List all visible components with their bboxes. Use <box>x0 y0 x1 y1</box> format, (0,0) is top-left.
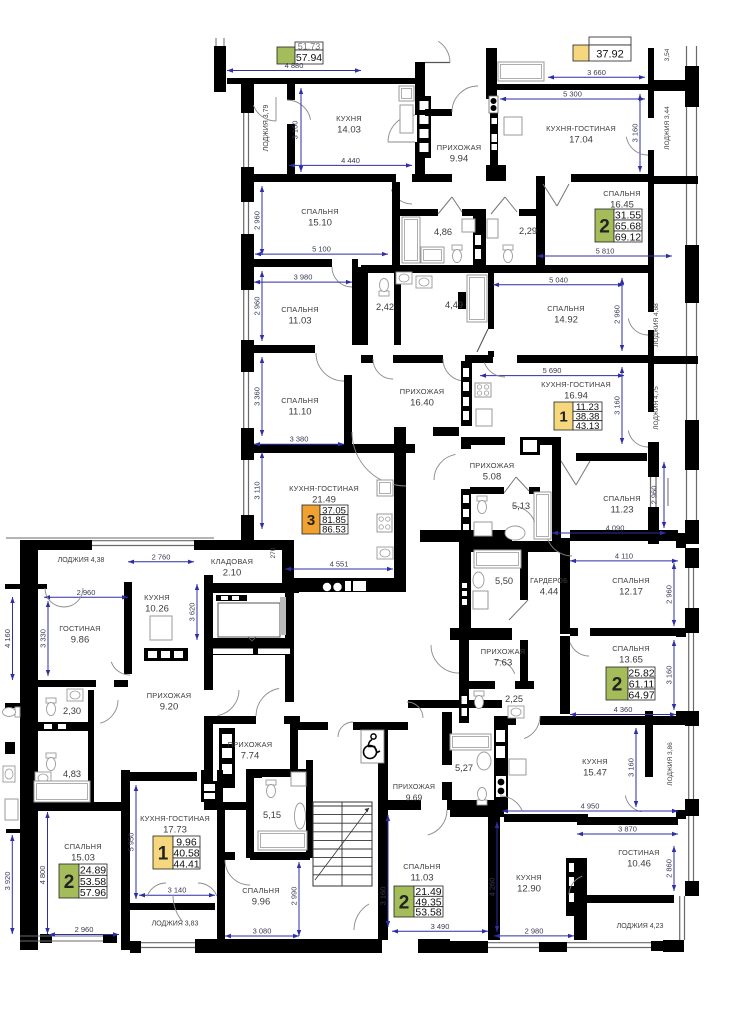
svg-text:11.03: 11.03 <box>410 873 433 884</box>
svg-text:СПАЛЬНЯ: СПАЛЬНЯ <box>603 494 641 503</box>
svg-text:3 160: 3 160 <box>665 666 674 685</box>
svg-text:9.94: 9.94 <box>450 154 469 165</box>
svg-text:ЛОДЖИЯ 3,83: ЛОДЖИЯ 3,83 <box>152 921 199 928</box>
svg-text:3 360: 3 360 <box>253 387 262 406</box>
svg-text:5 690: 5 690 <box>543 366 562 375</box>
svg-text:17.73: 17.73 <box>163 825 187 836</box>
svg-text:5 100: 5 100 <box>312 245 331 254</box>
svg-text:4,49: 4,49 <box>445 300 463 310</box>
svg-text:5.08: 5.08 <box>483 472 502 483</box>
svg-text:2 960: 2 960 <box>253 297 262 316</box>
svg-text:СПАЛЬНЯ: СПАЛЬНЯ <box>301 207 339 216</box>
svg-text:3 160: 3 160 <box>379 887 388 906</box>
svg-text:2 960: 2 960 <box>650 486 659 505</box>
svg-text:5 040: 5 040 <box>549 275 568 284</box>
svg-text:СПАЛЬНЯ: СПАЛЬНЯ <box>281 305 319 314</box>
svg-text:64.97: 64.97 <box>628 689 654 701</box>
svg-text:СПАЛЬНЯ: СПАЛЬНЯ <box>603 189 641 198</box>
svg-text:3 870: 3 870 <box>618 825 637 834</box>
svg-text:9.96: 9.96 <box>252 897 271 908</box>
svg-text:КЛАДОВАЯ: КЛАДОВАЯ <box>211 557 253 566</box>
svg-text:5,27: 5,27 <box>455 763 473 773</box>
svg-text:2: 2 <box>612 674 623 695</box>
svg-text:2: 2 <box>64 872 75 893</box>
svg-text:5 810: 5 810 <box>596 247 615 256</box>
svg-text:11.10: 11.10 <box>288 407 311 418</box>
svg-text:53.58: 53.58 <box>80 876 106 888</box>
svg-text:ГОСТИНАЯ: ГОСТИНАЯ <box>618 848 659 857</box>
svg-text:СПАЛЬНЯ: СПАЛЬНЯ <box>612 644 650 653</box>
svg-text:2,42: 2,42 <box>376 302 394 312</box>
svg-text:ЛОДЖИЯ 4,38: ЛОДЖИЯ 4,38 <box>58 557 105 564</box>
svg-text:69.12: 69.12 <box>615 231 641 243</box>
svg-text:2 960: 2 960 <box>75 925 94 934</box>
svg-text:3 330: 3 330 <box>39 629 48 648</box>
svg-text:СПАЛЬНЯ: СПАЛЬНЯ <box>403 862 441 871</box>
svg-text:37.92: 37.92 <box>596 49 624 61</box>
svg-text:2,25: 2,25 <box>505 694 523 704</box>
svg-text:2,29: 2,29 <box>519 226 537 236</box>
svg-text:2 960: 2 960 <box>253 211 262 230</box>
svg-text:КУХНЯ: КУХНЯ <box>516 873 542 882</box>
svg-text:44.41: 44.41 <box>173 858 199 870</box>
svg-text:7.74: 7.74 <box>241 751 260 762</box>
svg-text:3 920: 3 920 <box>3 872 12 891</box>
svg-text:3 160: 3 160 <box>627 758 636 777</box>
svg-text:3 160: 3 160 <box>291 121 300 140</box>
svg-text:4 160: 4 160 <box>3 629 12 648</box>
svg-text:3 080: 3 080 <box>253 927 272 936</box>
svg-text:ПРИХОЖАЯ: ПРИХОЖАЯ <box>481 647 526 656</box>
svg-text:5 950: 5 950 <box>127 833 136 852</box>
svg-text:КУХНЯ: КУХНЯ <box>144 593 170 602</box>
svg-text:16.94: 16.94 <box>564 391 588 402</box>
svg-text:24.89: 24.89 <box>80 864 106 876</box>
svg-text:21.49: 21.49 <box>312 495 336 506</box>
svg-text:270: 270 <box>270 547 277 558</box>
svg-text:4 551: 4 551 <box>330 560 349 569</box>
svg-text:15.10: 15.10 <box>308 218 332 229</box>
svg-text:3 160: 3 160 <box>613 396 622 415</box>
svg-text:КУХНЯ: КУХНЯ <box>336 114 362 123</box>
svg-text:ГОСТИНАЯ: ГОСТИНАЯ <box>59 624 100 633</box>
svg-text:2 960: 2 960 <box>77 588 96 597</box>
svg-text:9.20: 9.20 <box>160 702 179 713</box>
svg-text:ПРИХОЖАЯ: ПРИХОЖАЯ <box>147 691 192 700</box>
svg-text:ПРИХОЖАЯ: ПРИХОЖАЯ <box>470 461 515 470</box>
svg-text:11.03: 11.03 <box>288 316 311 327</box>
svg-text:16.40: 16.40 <box>410 398 434 409</box>
svg-text:2 990: 2 990 <box>290 887 299 906</box>
svg-text:12.90: 12.90 <box>517 884 541 895</box>
svg-text:4.44: 4.44 <box>540 587 559 598</box>
svg-text:14.03: 14.03 <box>337 125 361 136</box>
svg-text:КУХНЯ: КУХНЯ <box>582 757 608 766</box>
svg-text:КУХНЯ-ГОСТИНАЯ: КУХНЯ-ГОСТИНАЯ <box>541 380 611 389</box>
svg-text:1: 1 <box>559 408 567 425</box>
svg-text:ПРИХОЖАЯ: ПРИХОЖАЯ <box>437 143 482 152</box>
svg-text:5,15: 5,15 <box>263 810 281 820</box>
svg-text:12.17: 12.17 <box>619 587 643 598</box>
svg-text:5,50: 5,50 <box>495 576 513 586</box>
svg-text:53.58: 53.58 <box>415 907 441 919</box>
svg-text:1: 1 <box>158 843 169 864</box>
svg-text:3 620: 3 620 <box>188 603 197 622</box>
svg-text:2: 2 <box>599 216 610 237</box>
svg-text:10.46: 10.46 <box>627 859 651 870</box>
svg-text:4 110: 4 110 <box>615 551 633 560</box>
svg-text:11.23: 11.23 <box>610 505 633 516</box>
svg-text:ЛОДЖИЯ 4,68: ЛОДЖИЯ 4,68 <box>653 303 660 347</box>
svg-text:15.47: 15.47 <box>583 768 607 779</box>
svg-text:2 980: 2 980 <box>525 926 544 935</box>
svg-text:4,83: 4,83 <box>63 769 81 779</box>
svg-text:3 160: 3 160 <box>631 124 640 143</box>
svg-text:ЛОДЖИЯ 4,23: ЛОДЖИЯ 4,23 <box>617 923 664 930</box>
svg-text:ПРИХОЖАЯ: ПРИХОЖАЯ <box>228 740 273 749</box>
svg-text:4,86: 4,86 <box>434 227 452 237</box>
svg-text:СПАЛЬНЯ: СПАЛЬНЯ <box>281 396 319 405</box>
svg-text:ЛОДЖИЯ 4,75: ЛОДЖИЯ 4,75 <box>653 386 660 430</box>
svg-text:ЛОДЖИЯ 3,86: ЛОДЖИЯ 3,86 <box>667 742 674 786</box>
svg-text:2: 2 <box>399 892 410 913</box>
svg-text:4 090: 4 090 <box>606 524 625 533</box>
svg-text:ГАРДЕРОБ: ГАРДЕРОБ <box>530 578 568 585</box>
svg-text:2 760: 2 760 <box>152 552 171 561</box>
svg-text:3 110: 3 110 <box>253 481 262 499</box>
svg-text:2.10: 2.10 <box>223 568 242 579</box>
svg-text:3 660: 3 660 <box>587 68 606 77</box>
svg-text:2 960: 2 960 <box>665 585 674 604</box>
svg-text:3: 3 <box>307 512 315 529</box>
svg-text:57.96: 57.96 <box>80 887 106 899</box>
svg-text:4 880: 4 880 <box>285 61 304 70</box>
svg-text:2 960: 2 960 <box>613 305 622 324</box>
svg-text:2,30: 2,30 <box>63 706 81 716</box>
svg-text:9.86: 9.86 <box>71 635 90 646</box>
svg-text:КУХНЯ-ГОСТИНАЯ: КУХНЯ-ГОСТИНАЯ <box>289 484 359 493</box>
svg-text:13.65: 13.65 <box>619 655 643 666</box>
svg-text:СПАЛЬНЯ: СПАЛЬНЯ <box>242 886 280 895</box>
svg-text:ЛОДЖИЯ 3,44: ЛОДЖИЯ 3,44 <box>664 106 671 150</box>
svg-text:3,54: 3,54 <box>664 48 671 61</box>
svg-text:КУХНЯ-ГОСТИНАЯ: КУХНЯ-ГОСТИНАЯ <box>546 124 616 133</box>
svg-text:ПРИХОЖАЯ: ПРИХОЖАЯ <box>400 387 445 396</box>
svg-text:4 360: 4 360 <box>614 705 633 714</box>
svg-text:17.04: 17.04 <box>569 135 593 146</box>
svg-text:4 260: 4 260 <box>488 878 497 897</box>
svg-text:9.69: 9.69 <box>406 793 423 803</box>
svg-text:10.26: 10.26 <box>145 604 169 615</box>
svg-text:ЛОДЖИЯ 3,79: ЛОДЖИЯ 3,79 <box>263 105 270 152</box>
svg-text:3 380: 3 380 <box>290 435 309 444</box>
svg-text:ПРИХОЖАЯ: ПРИХОЖАЯ <box>393 784 435 791</box>
svg-text:4 440: 4 440 <box>341 156 360 165</box>
svg-text:3 980: 3 980 <box>294 273 313 282</box>
svg-text:86.53: 86.53 <box>322 525 346 536</box>
svg-text:СПАЛЬНЯ: СПАЛЬНЯ <box>64 842 102 851</box>
svg-text:4 950: 4 950 <box>581 802 600 811</box>
svg-text:7.63: 7.63 <box>494 658 513 669</box>
svg-text:43.13: 43.13 <box>576 421 600 432</box>
svg-text:15.03: 15.03 <box>71 853 95 864</box>
svg-text:3 140: 3 140 <box>168 886 187 895</box>
svg-text:СПАЛЬНЯ: СПАЛЬНЯ <box>547 304 585 313</box>
svg-text:3 490: 3 490 <box>431 922 450 931</box>
svg-text:4 800: 4 800 <box>38 866 47 885</box>
svg-text:КУХНЯ-ГОСТИНАЯ: КУХНЯ-ГОСТИНАЯ <box>140 814 210 823</box>
svg-text:СПАЛЬНЯ: СПАЛЬНЯ <box>612 576 650 585</box>
svg-text:14.92: 14.92 <box>554 315 578 326</box>
svg-text:5 300: 5 300 <box>563 90 582 99</box>
svg-text:2 860: 2 860 <box>665 859 674 878</box>
